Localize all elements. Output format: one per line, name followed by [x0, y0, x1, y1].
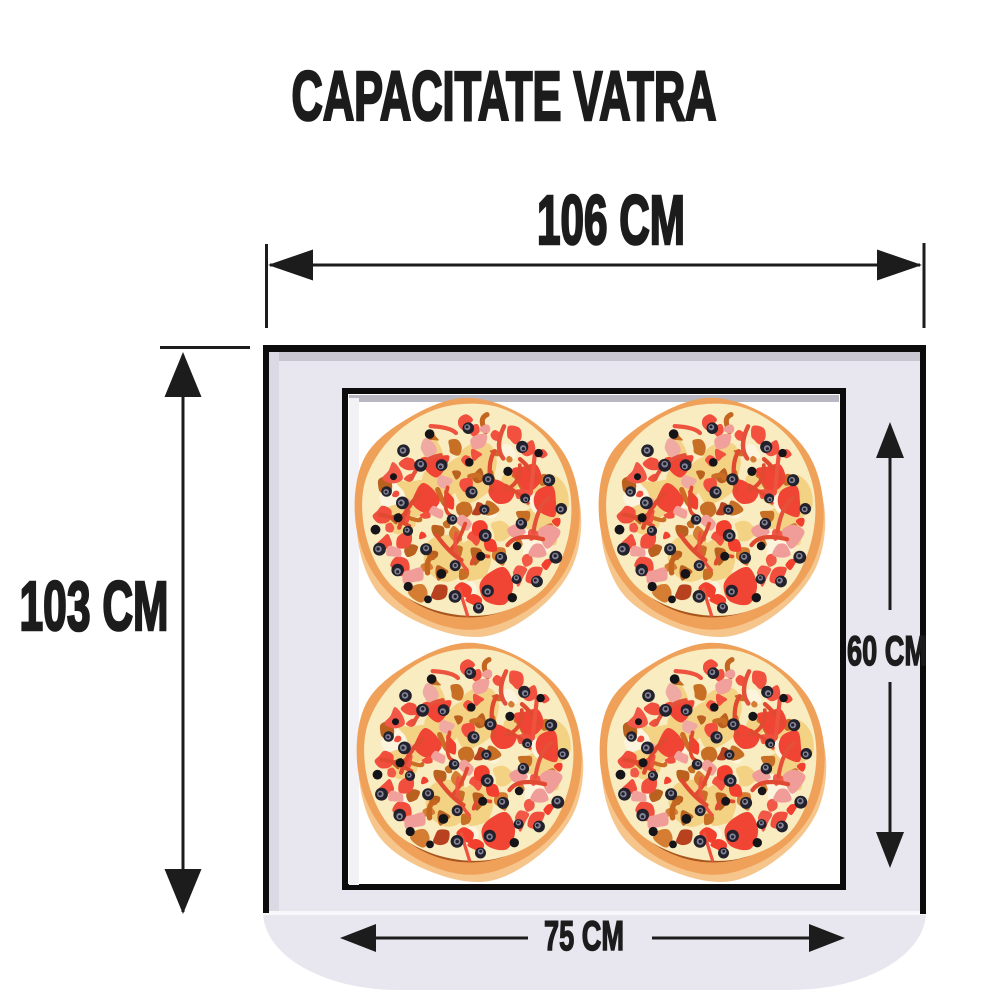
svg-text:103 CM: 103 CM — [20, 567, 169, 645]
svg-text:60 CM: 60 CM — [847, 627, 927, 674]
svg-text:75 CM: 75 CM — [544, 912, 624, 959]
svg-text:CAPACITATE VATRA: CAPACITATE VATRA — [292, 57, 717, 135]
svg-text:106 CM: 106 CM — [537, 181, 685, 259]
